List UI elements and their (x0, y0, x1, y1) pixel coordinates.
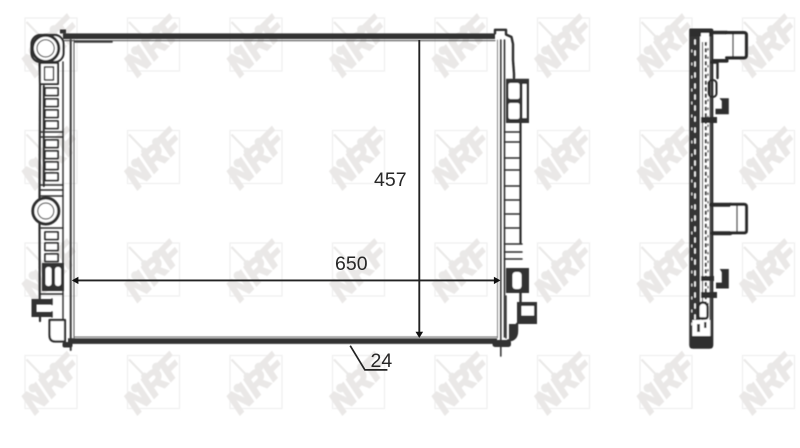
svg-text:650: 650 (335, 253, 368, 275)
svg-text:457: 457 (374, 169, 407, 191)
svg-text:24: 24 (371, 350, 393, 372)
